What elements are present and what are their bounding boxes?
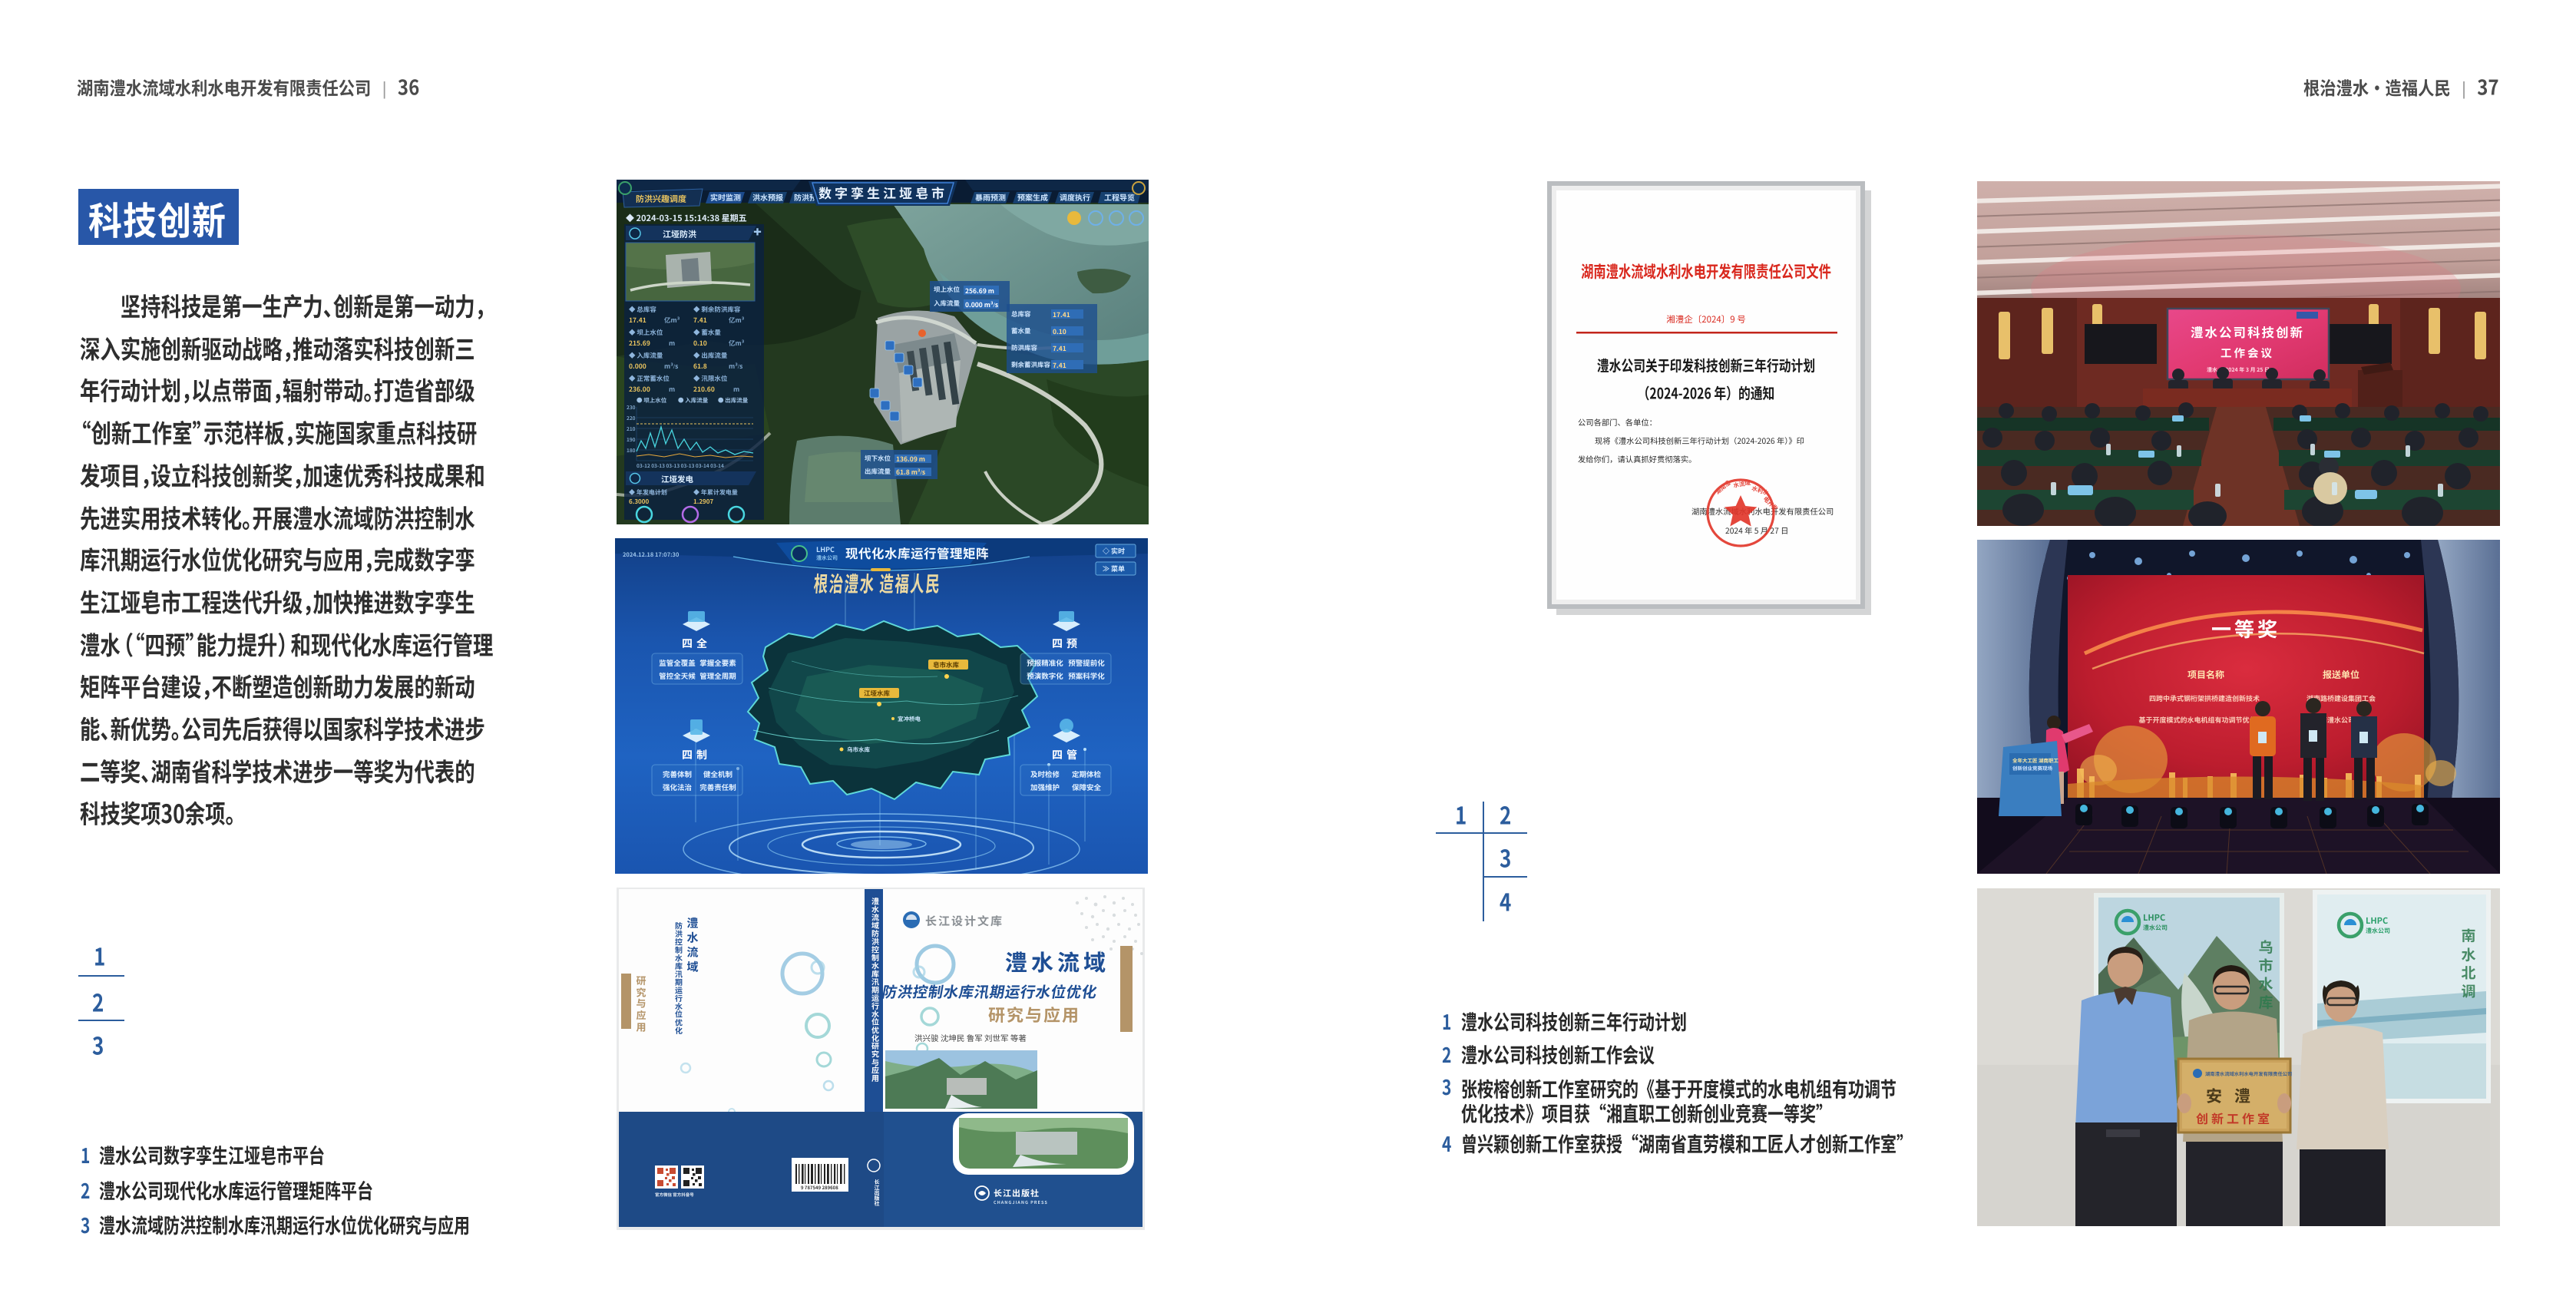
svg-text:强化法治: 强化法治: [663, 782, 693, 792]
svg-text:7.41: 7.41: [1053, 344, 1066, 353]
svg-text:澧水流域: 澧水流域: [685, 917, 701, 975]
svg-text:四管: 四管: [1052, 747, 1081, 762]
svg-text:◆ 蓄水量: ◆ 蓄水量: [693, 328, 721, 337]
svg-text:乌市水库: 乌市水库: [2256, 939, 2277, 1013]
svg-text:长江出版社: 长江出版社: [873, 1179, 881, 1206]
svg-text:坝上水位: 坝上水位: [934, 285, 961, 294]
svg-text:澧水公司关于印发科技创新三年行动计划: 澧水公司关于印发科技创新三年行动计划: [1597, 354, 1815, 376]
svg-text:健全机制: 健全机制: [703, 769, 732, 779]
svg-text:长江设计文库: 长江设计文库: [925, 913, 1004, 929]
svg-text:✚: ✚: [753, 226, 762, 238]
svg-text:6.3000: 6.3000: [629, 498, 649, 506]
svg-text:9 787549 289608: 9 787549 289608: [801, 1184, 838, 1191]
svg-text:防洪控制水库汛期运行水位优化: 防洪控制水库汛期运行水位优化: [881, 980, 1100, 1002]
svg-text:澧水公司: 澧水公司: [2366, 927, 2390, 935]
svg-text:0.10: 0.10: [693, 339, 707, 348]
svg-text:◇ 实时: ◇ 实时: [1103, 546, 1125, 556]
svg-text:预演数字化: 预演数字化: [1027, 670, 1063, 681]
svg-text:m³/s: m³/s: [664, 362, 678, 371]
svg-text:◆ 剩余防洪库容: ◆ 剩余防洪库容: [693, 305, 741, 314]
svg-text:完善体制: 完善体制: [663, 769, 692, 779]
svg-text:● 坝上水位: ● 坝上水位: [637, 396, 667, 405]
svg-text:澧水公司: 澧水公司: [816, 554, 838, 562]
svg-text:一等奖: 一等奖: [2211, 614, 2280, 643]
svg-text:● 出库流量: ● 出库流量: [718, 396, 749, 405]
svg-text:澧水公司: 澧水公司: [2143, 924, 2168, 932]
svg-text:研究与应用: 研究与应用: [634, 975, 649, 1033]
svg-text:预警提前化: 预警提前化: [1068, 657, 1105, 668]
svg-text:● 入库流量: ● 入库流量: [678, 396, 709, 405]
svg-text:1.2907: 1.2907: [693, 498, 713, 506]
svg-text:◆ 坝上水位: ◆ 坝上水位: [629, 328, 663, 337]
svg-text:出库流量: 出库流量: [865, 467, 891, 476]
svg-text:洪水预报: 洪水预报: [752, 191, 783, 203]
svg-text:管控全天候: 管控全天候: [659, 670, 696, 681]
svg-text:210: 210: [627, 425, 636, 432]
svg-text:创新工作室: 创新工作室: [2196, 1109, 2273, 1127]
svg-text:m: m: [669, 339, 675, 348]
svg-text:防洪控制水库汛期运行水位优化: 防洪控制水库汛期运行水位优化: [673, 921, 685, 1034]
svg-text:澧水 · 2024 年 3 月 25 日: 澧水 · 2024 年 3 月 25 日: [2207, 366, 2270, 374]
svg-text:◆ 年发电计划: ◆ 年发电计划: [629, 488, 667, 497]
svg-text:四跨中承式钢桁架拱桥建造创新技术: 四跨中承式钢桁架拱桥建造创新技术: [2149, 693, 2260, 703]
svg-text:实时监测: 实时监测: [710, 191, 741, 203]
svg-text:LHPC: LHPC: [2366, 914, 2388, 927]
svg-text:03-12 03-13 03-13 03-13 03-14: 03-12 03-13 03-13 03-13 03-14 03-14: [637, 461, 724, 469]
svg-text:预案生成: 预案生成: [1017, 191, 1048, 203]
svg-text:LHPC: LHPC: [2143, 911, 2165, 924]
svg-text:湖南澧水流域水利水电开发有限责任公司文件: 湖南澧水流域水利水电开发有限责任公司文件: [1581, 260, 1831, 283]
svg-text:澧水流域防洪控制水库汛期运行水位优化研究与应用: 澧水流域防洪控制水库汛期运行水位优化研究与应用: [870, 897, 881, 1083]
svg-text:180: 180: [627, 446, 636, 454]
svg-text:现将《澧水公司科技创新三年行动计划（2024-2026 年）: 现将《澧水公司科技创新三年行动计划（2024-2026 年）》印: [1595, 435, 1804, 446]
svg-text:定期体检: 定期体检: [1072, 769, 1102, 779]
svg-text:◆ 2024-03-15 15:14:38 星期五: ◆ 2024-03-15 15:14:38 星期五: [626, 212, 747, 224]
svg-text:17.41: 17.41: [1053, 310, 1070, 319]
svg-text:暴雨预测: 暴雨预测: [975, 191, 1006, 203]
svg-text:防洪库容: 防洪库容: [1011, 343, 1038, 352]
svg-text:0.000: 0.000: [629, 362, 646, 371]
svg-text:洪兴骏 沈坤民 鲁军 刘世军 等著: 洪兴骏 沈坤民 鲁军 刘世军 等著: [914, 1033, 1027, 1044]
svg-text:官方微信 官方抖音号: 官方微信 官方抖音号: [655, 1192, 694, 1198]
svg-text:◆ 入库流量: ◆ 入库流量: [629, 351, 663, 360]
svg-text:监管全覆盖: 监管全覆盖: [659, 657, 696, 668]
svg-text:湖南澧水流域水利水电开发有限责任公司: 湖南澧水流域水利水电开发有限责任公司: [2205, 1070, 2292, 1077]
svg-text:入库流量: 入库流量: [934, 299, 961, 308]
svg-text:m: m: [733, 385, 739, 394]
svg-text:研究与应用: 研究与应用: [988, 1002, 1080, 1027]
svg-text:防洪兴趣调度: 防洪兴趣调度: [636, 193, 686, 205]
svg-text:256.69 m: 256.69 m: [965, 286, 994, 296]
svg-text:230: 230: [627, 403, 636, 411]
svg-text:公司各部门、各单位：: 公司各部门、各单位：: [1578, 416, 1657, 428]
svg-text:◆ 出库流量: ◆ 出库流量: [693, 351, 728, 360]
svg-text:发给你们，请认真抓好贯彻落实。: 发给你们，请认真抓好贯彻落实。: [1578, 453, 1696, 465]
svg-text:管理全周期: 管理全周期: [699, 670, 736, 681]
svg-text:湖南澧水流域水利水电开发有限责任公司: 湖南澧水流域水利水电开发有限责任公司: [1691, 505, 1834, 517]
svg-text:现代化水库运行管理矩阵: 现代化水库运行管理矩阵: [845, 544, 989, 562]
svg-text:61.8 m³/s: 61.8 m³/s: [896, 468, 925, 477]
svg-text:亿m³: 亿m³: [729, 316, 745, 325]
svg-text:0.10: 0.10: [1053, 327, 1066, 336]
svg-text:项目名称: 项目名称: [2187, 668, 2224, 681]
svg-text:7.41: 7.41: [693, 316, 707, 325]
svg-text:湘澧企〔2024〕9 号: 湘澧企〔2024〕9 号: [1666, 313, 1746, 326]
svg-text:坝下水位: 坝下水位: [865, 454, 891, 463]
svg-text:完善责任制: 完善责任制: [699, 782, 736, 792]
svg-text:2024 年 5 月 27 日: 2024 年 5 月 27 日: [1725, 524, 1788, 536]
svg-text:乌市水库: 乌市水库: [847, 746, 870, 754]
svg-text:2024.12.18 17:07:30: 2024.12.18 17:07:30: [623, 551, 680, 559]
svg-text:蓄水量: 蓄水量: [1011, 326, 1031, 336]
svg-text:保障安全: 保障安全: [1072, 782, 1102, 792]
svg-text:≫ 菜单: ≫ 菜单: [1103, 564, 1125, 574]
svg-text:CHANGJIANG PRESS: CHANGJIANG PRESS: [994, 1199, 1048, 1205]
svg-text:220: 220: [627, 414, 636, 422]
svg-text:南水北调: 南水北调: [2459, 928, 2479, 1002]
svg-text:亿m³: 亿m³: [729, 339, 745, 348]
svg-text:136.09 m: 136.09 m: [896, 455, 925, 464]
svg-text:236.00: 236.00: [629, 385, 650, 394]
svg-text:安澧: 安澧: [2206, 1084, 2263, 1107]
svg-text:总库容: 总库容: [1011, 309, 1031, 319]
svg-text:7.41: 7.41: [1053, 361, 1066, 370]
svg-text:◆ 总库容: ◆ 总库容: [629, 305, 656, 314]
svg-text:215.69: 215.69: [629, 339, 650, 348]
svg-text:◆ 年累计发电量: ◆ 年累计发电量: [693, 488, 738, 497]
svg-text:四制: 四制: [682, 747, 711, 762]
svg-text:澧水流域: 澧水流域: [1005, 945, 1109, 977]
svg-text:预报精准化: 预报精准化: [1027, 657, 1063, 668]
svg-text:全年大工匠 湖南职工: 全年大工匠 湖南职工: [2012, 756, 2058, 764]
svg-text:预案科学化: 预案科学化: [1068, 670, 1105, 681]
svg-text:190: 190: [627, 435, 636, 443]
svg-text:皂市水库: 皂市水库: [933, 660, 960, 670]
svg-text:宜冲桥电: 宜冲桥电: [898, 715, 921, 723]
svg-text:◆ 正常蓄水位: ◆ 正常蓄水位: [629, 374, 670, 383]
svg-text:◆ 汛限水位: ◆ 汛限水位: [693, 374, 728, 383]
svg-text:及时检修: 及时检修: [1030, 769, 1060, 779]
svg-text:调度执行: 调度执行: [1060, 191, 1090, 203]
svg-text:剩余蓄洪库容: 剩余蓄洪库容: [1011, 360, 1051, 369]
svg-text:澧水公司科技创新: 澧水公司科技创新: [2191, 322, 2304, 341]
svg-text:17.41: 17.41: [629, 316, 646, 325]
svg-text:根治澧水 造福人民: 根治澧水 造福人民: [813, 567, 942, 598]
svg-text:210.60: 210.60: [693, 385, 715, 394]
svg-text:掌握全要素: 掌握全要素: [699, 657, 736, 668]
svg-text:0.000 m³/s: 0.000 m³/s: [965, 300, 998, 309]
svg-text:m³/s: m³/s: [729, 362, 742, 371]
svg-text:四预: 四预: [1052, 636, 1081, 651]
svg-text:四全: 四全: [682, 636, 711, 651]
svg-text:工作会议: 工作会议: [2221, 345, 2274, 361]
svg-text:亿m³: 亿m³: [664, 316, 680, 325]
svg-text:长江出版社: 长江出版社: [994, 1187, 1040, 1199]
svg-text:m: m: [669, 385, 675, 394]
svg-text:（2024-2026 年）的通知: （2024-2026 年）的通知: [1638, 382, 1775, 405]
svg-text:数字孪生江垭皂市: 数字孪生江垭皂市: [818, 183, 947, 202]
svg-text:LHPC: LHPC: [816, 544, 835, 554]
svg-text:工程导览: 工程导览: [1104, 191, 1135, 203]
svg-text:创新创业竞赛现场: 创新创业竞赛现场: [2012, 764, 2053, 772]
svg-text:报送单位: 报送单位: [2323, 668, 2359, 681]
svg-text:江垭防洪: 江垭防洪: [663, 228, 696, 240]
svg-text:江垭水库: 江垭水库: [864, 689, 891, 698]
svg-text:加强维护: 加强维护: [1030, 782, 1060, 792]
svg-text:江垭发电: 江垭发电: [661, 474, 693, 485]
svg-text:61.8: 61.8: [693, 362, 707, 371]
